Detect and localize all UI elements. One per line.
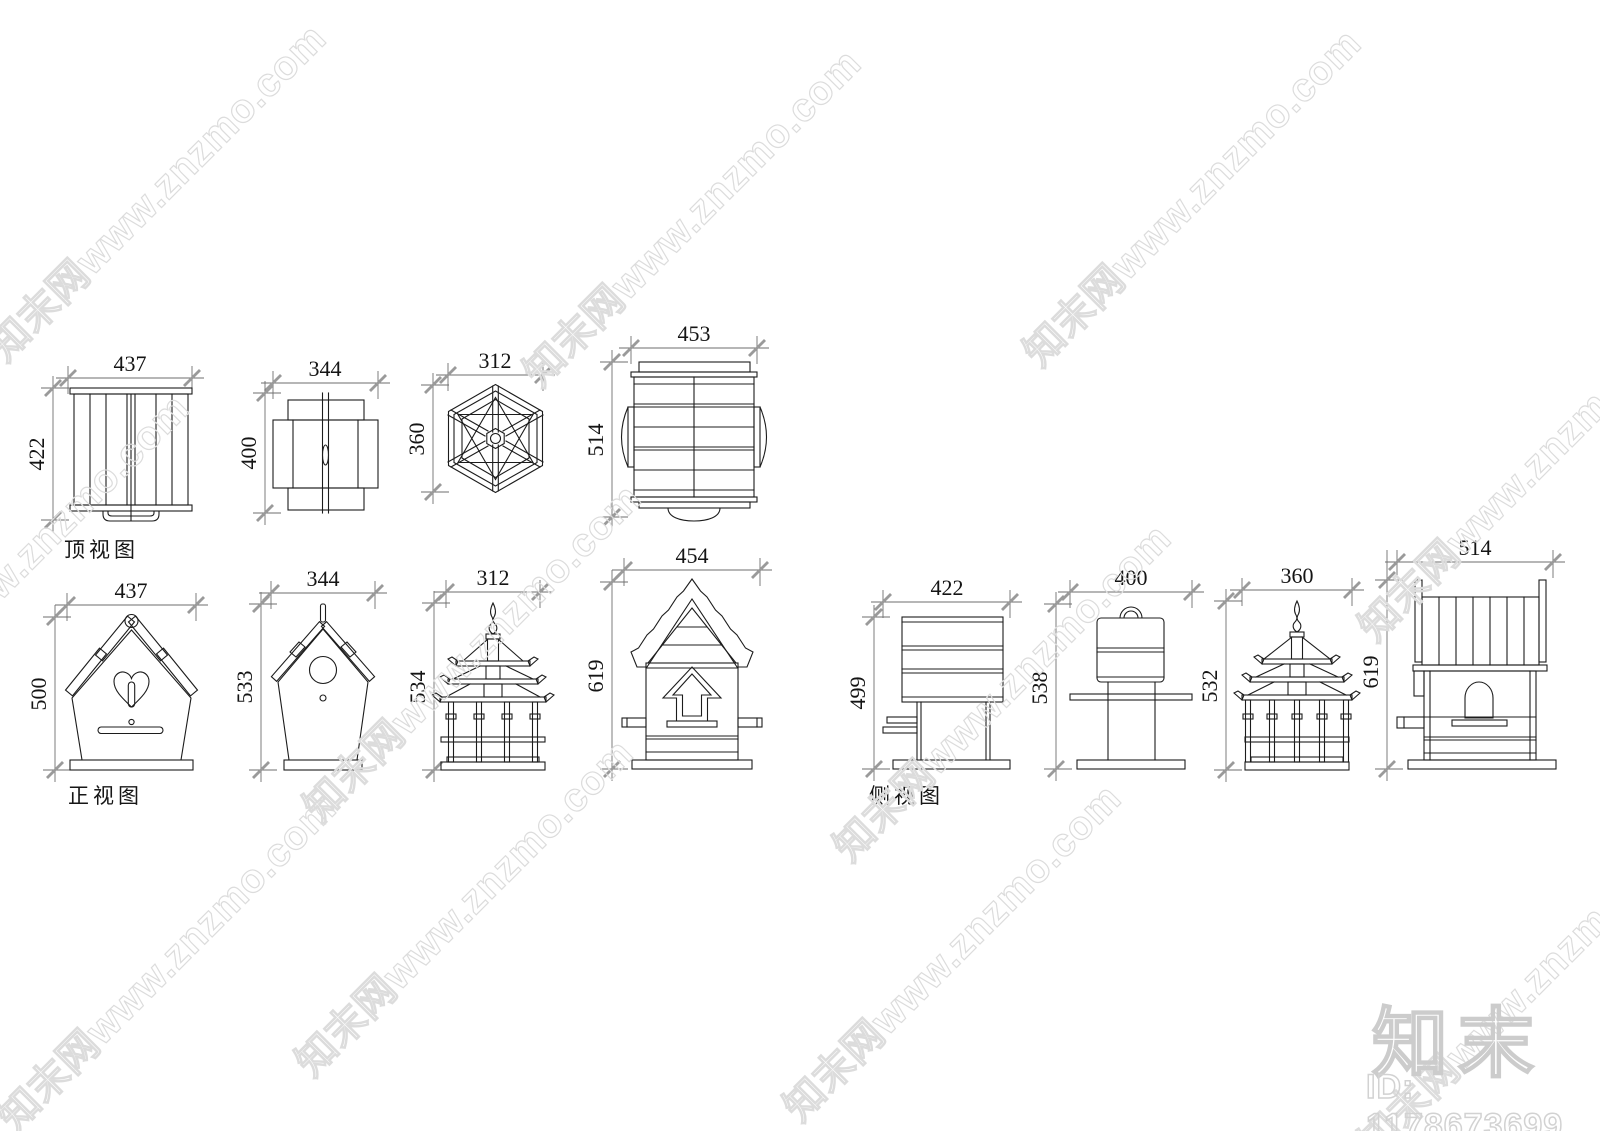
dim-side3-width: 360 [1230, 563, 1364, 606]
side-view-cabin-feeder [1397, 580, 1556, 769]
dim-side3-height: 532 [1197, 589, 1242, 782]
dim-front3-height: 534 [405, 591, 450, 782]
dim-label: 514 [1459, 535, 1492, 560]
front-view-section-label: 正视图 [68, 780, 143, 810]
front-view-heart-birdhouse [66, 615, 198, 771]
dim-top4-width: 453 [619, 321, 769, 364]
dim-side4-height: 619 [1358, 550, 1403, 781]
dim-label: 500 [26, 678, 51, 711]
dim-top1-height: 422 [24, 376, 69, 532]
side-view-pagoda-birdhouse [1234, 601, 1360, 770]
dim-label: 312 [477, 565, 510, 590]
dim-label: 453 [678, 321, 711, 346]
dim-top2-height: 400 [236, 381, 281, 525]
side-view-flatpack-birdhouse [1070, 607, 1192, 769]
top-view-section-label: 顶视图 [64, 534, 139, 564]
cad-sheet: 437 422 344 400 [0, 0, 1600, 1131]
dim-label: 532 [1197, 670, 1222, 703]
dim-label: 437 [114, 351, 147, 376]
drawing-canvas: 437 422 344 400 [0, 0, 1600, 1131]
dim-front1-height: 500 [26, 605, 71, 782]
top-view-plank-birdhouse [70, 388, 192, 521]
front-view-cabin-feeder [622, 579, 762, 769]
dim-top3-height: 360 [404, 373, 449, 504]
item-id-label: ID: 1178673699 [1366, 1068, 1600, 1131]
dim-side1-height: 499 [845, 605, 890, 781]
dim-label: 344 [307, 566, 340, 591]
dim-label: 422 [24, 438, 49, 471]
dim-label: 514 [583, 424, 608, 457]
dim-label: 538 [1027, 672, 1052, 705]
front-view-classic-birdhouse [271, 604, 374, 770]
dim-side2-height: 538 [1027, 592, 1072, 781]
dim-front2-width: 344 [259, 566, 387, 609]
dim-front4-height: 619 [583, 570, 628, 781]
dim-front3-width: 312 [434, 565, 552, 608]
dim-label: 534 [405, 671, 430, 704]
dim-label: 533 [232, 671, 257, 704]
dim-label: 400 [1115, 565, 1148, 590]
dim-label: 437 [115, 578, 148, 603]
dim-label: 312 [479, 348, 512, 373]
side-view-plank-birdhouse [883, 617, 1010, 769]
dim-label: 344 [309, 356, 342, 381]
side-view-section-label: 侧视图 [869, 780, 944, 810]
dim-side1-width: 422 [871, 575, 1022, 618]
dim-label: 619 [1358, 656, 1383, 689]
dim-side2-width: 400 [1058, 565, 1204, 608]
dim-label: 360 [1281, 563, 1314, 588]
top-view-hex-gazebo [448, 385, 543, 493]
dim-label: 422 [931, 575, 964, 600]
top-view-cabin-feeder [622, 362, 767, 521]
top-view-flatpack-birdhouse [273, 393, 378, 513]
dim-front2-height: 533 [232, 592, 277, 782]
dim-label: 400 [236, 437, 261, 470]
dim-label: 619 [583, 660, 608, 693]
front-view-pagoda-birdhouse [432, 603, 554, 770]
dim-label: 360 [404, 423, 429, 456]
dim-label: 454 [676, 543, 709, 568]
dim-side4-width: 514 [1385, 535, 1565, 578]
dim-label: 499 [845, 677, 870, 710]
